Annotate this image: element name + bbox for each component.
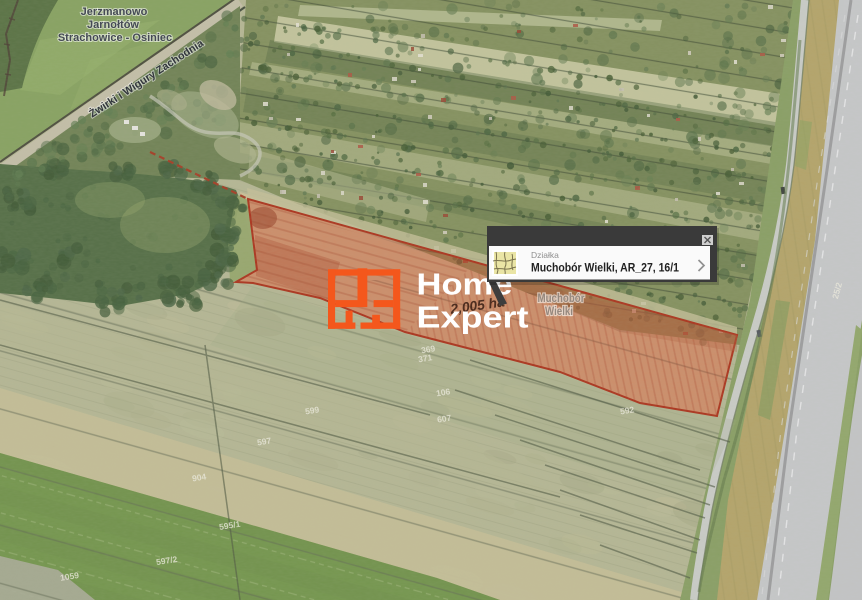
- svg-text:Expert: Expert: [417, 300, 529, 334]
- svg-text:Muchobór Wielki, AR_27, 16/1: Muchobór Wielki, AR_27, 16/1: [531, 261, 679, 275]
- svg-text:Wielki: Wielki: [545, 306, 573, 318]
- svg-text:Działka: Działka: [531, 250, 559, 260]
- svg-text:Jarnołtów: Jarnołtów: [87, 19, 139, 31]
- svg-text:Muchobór: Muchobór: [538, 293, 585, 305]
- svg-text:Strachowice - Osiniec: Strachowice - Osiniec: [58, 32, 172, 44]
- svg-text:Jerzmanowo: Jerzmanowo: [81, 6, 148, 18]
